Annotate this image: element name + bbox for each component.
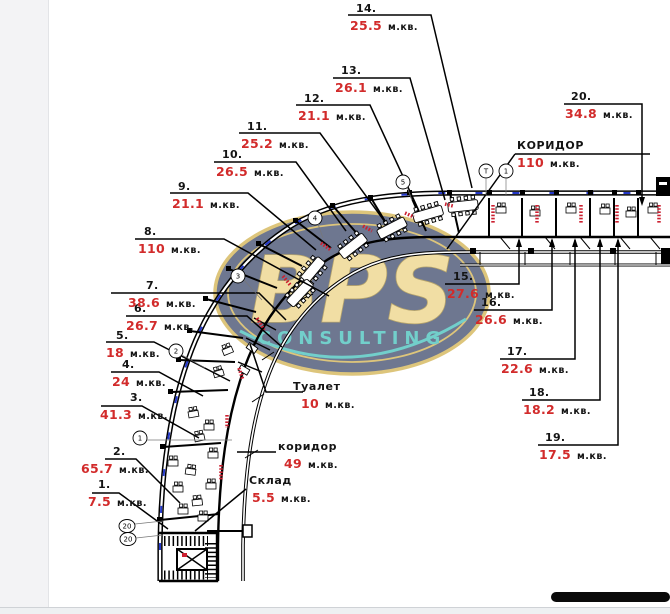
room-area: 7.5 <box>88 494 111 509</box>
corridor-small-label: коридор49м.кв. <box>278 441 338 471</box>
room-area: 65.7 <box>81 461 113 476</box>
room-unit: м.кв. <box>373 84 403 95</box>
room-number: 3. <box>130 392 168 403</box>
room-unit: м.кв. <box>279 140 309 151</box>
room-label-4: 4.24м.кв. <box>116 359 166 389</box>
room-unit: м.кв. <box>513 316 543 327</box>
room-unit: м.кв. <box>308 460 338 471</box>
room-label-1: 1.7.5м.кв. <box>92 479 147 509</box>
room-label-2: 2.65.7м.кв. <box>107 446 149 476</box>
room-name: Туалет <box>293 381 355 392</box>
room-area: 10 <box>301 396 319 411</box>
room-area: 21.1 <box>298 108 330 123</box>
room-area: 38.6 <box>128 295 160 310</box>
room-area: 26.6 <box>475 312 507 327</box>
room-label-13: 13.26.1м.кв. <box>335 65 403 95</box>
marker-1: 1 <box>138 435 142 443</box>
thick-wall-bar <box>551 592 670 602</box>
room-area: 18.2 <box>523 402 555 417</box>
room-unit: м.кв. <box>164 322 194 333</box>
room-area: 41.3 <box>100 407 132 422</box>
room-area: 24 <box>112 374 130 389</box>
marker-2: 2 <box>174 348 178 356</box>
room-area: 5.5 <box>252 490 275 505</box>
room-number: 15. <box>453 271 515 282</box>
room-area: 49 <box>284 456 302 471</box>
room-area: 26.1 <box>335 80 367 95</box>
room-area: 18 <box>106 345 124 360</box>
room-unit: м.кв. <box>325 400 355 411</box>
room-name: коридор <box>278 441 338 452</box>
room-number: 9. <box>178 181 240 192</box>
room-area: 110 <box>517 155 544 170</box>
room-number: 19. <box>545 432 607 443</box>
room-area: 110 <box>138 241 165 256</box>
room-number: 20. <box>571 91 633 102</box>
room-number: 2. <box>113 446 149 457</box>
room-unit: м.кв. <box>281 494 311 505</box>
room-area: 17.5 <box>539 447 571 462</box>
stair-core <box>159 525 252 581</box>
room-area: 26.5 <box>216 164 248 179</box>
room-unit: м.кв. <box>166 299 196 310</box>
room-number: 7. <box>146 280 196 291</box>
room-unit: м.кв. <box>136 378 166 389</box>
room-area: 22.6 <box>501 361 533 376</box>
room-area: 34.8 <box>565 106 597 121</box>
room-label-7: 7.38.6м.кв. <box>140 280 196 310</box>
room-area: 25.2 <box>241 136 273 151</box>
room-label-18: 18.18.2м.кв. <box>523 387 591 417</box>
room-unit: м.кв. <box>171 245 201 256</box>
room-unit: м.кв. <box>138 411 168 422</box>
room-unit: м.кв. <box>603 110 633 121</box>
room-number: 14. <box>356 3 418 14</box>
room-unit: м.кв. <box>210 200 240 211</box>
room-label-20: 20.34.8м.кв. <box>565 91 633 121</box>
room-number: 1. <box>98 479 147 490</box>
room-number: 13. <box>341 65 403 76</box>
room-unit: м.кв. <box>388 22 418 33</box>
storage-label: Склад5.5м.кв. <box>249 475 311 505</box>
room-label-8: 8.110м.кв. <box>138 226 201 256</box>
room-number: 8. <box>144 226 201 237</box>
room-label-11: 11.25.2м.кв. <box>241 121 309 151</box>
room-unit: м.кв. <box>254 168 284 179</box>
room-area: 21.1 <box>172 196 204 211</box>
room-unit: м.кв. <box>130 349 160 360</box>
marker-20b: 20 <box>124 536 133 544</box>
room-label-16: 16.26.6м.кв. <box>475 297 543 327</box>
marker-4: 4 <box>313 215 318 223</box>
room-number: 16. <box>481 297 543 308</box>
marker-3: 3 <box>236 273 240 281</box>
room-label-19: 19.17.5м.кв. <box>539 432 607 462</box>
room-unit: м.кв. <box>577 451 607 462</box>
room-number: 18. <box>529 387 591 398</box>
room-label-9: 9.21.1м.кв. <box>172 181 240 211</box>
marker-5: 5 <box>401 179 405 187</box>
marker-t: Т <box>483 168 489 176</box>
page-bottom-margin <box>0 607 670 614</box>
marker-1b: 1 <box>504 168 508 176</box>
room-label-3: 3.41.3м.кв. <box>124 392 168 422</box>
room-unit: м.кв. <box>119 465 149 476</box>
marker-20a: 20 <box>123 523 132 531</box>
room-unit: м.кв. <box>550 159 580 170</box>
room-name: КОРИДОР <box>517 140 584 151</box>
room-unit: м.кв. <box>117 498 147 509</box>
floorplan-image: BPS CONSULTING <box>0 0 670 614</box>
room-label-5: 5.18м.кв. <box>110 330 160 360</box>
room-label-14: 14.25.5м.кв. <box>350 3 418 33</box>
corridor-main-label: КОРИДОР110м.кв. <box>517 140 584 170</box>
partitions-right-wing <box>470 190 660 254</box>
room-unit: м.кв. <box>539 365 569 376</box>
room-number: 4. <box>122 359 166 370</box>
room-label-10: 10.26.5м.кв. <box>216 149 284 179</box>
room-label-12: 12.21.1м.кв. <box>298 93 366 123</box>
room-name: Склад <box>249 475 311 486</box>
room-number: 17. <box>507 346 569 357</box>
room-unit: м.кв. <box>336 112 366 123</box>
room-label-17: 17.22.6м.кв. <box>501 346 569 376</box>
room-area: 25.5 <box>350 18 382 33</box>
toilet-label: Туалет10м.кв. <box>293 381 355 411</box>
room-unit: м.кв. <box>561 406 591 417</box>
room-area: 26.7 <box>126 318 158 333</box>
